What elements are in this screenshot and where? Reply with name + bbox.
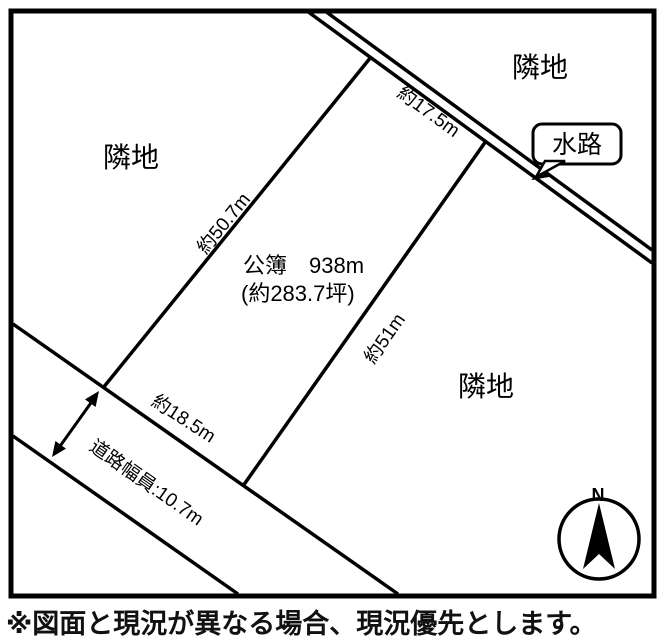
waterway-label: 水路 — [552, 131, 602, 159]
land-plot-page: 水路 隣地 隣地 隣地 約17.5m 約50.7m 約51m 約18.5m 道路… — [0, 0, 664, 640]
neighbor-label-bottom-right: 隣地 — [458, 371, 514, 402]
neighbor-label-top-right: 隣地 — [512, 52, 568, 83]
compass-north-label: N — [592, 485, 605, 505]
plot-diagram: 水路 隣地 隣地 隣地 約17.5m 約50.7m 約51m 約18.5m 道路… — [0, 0, 664, 600]
parcel-area-line2: (約283.7坪) — [241, 281, 355, 306]
neighbor-label-top-left: 隣地 — [103, 142, 159, 173]
parcel-area-line1: 公簿 938m — [243, 253, 364, 278]
disclaimer-caption: ※図面と現況が異なる場合、現況優先とします。 — [6, 602, 662, 640]
